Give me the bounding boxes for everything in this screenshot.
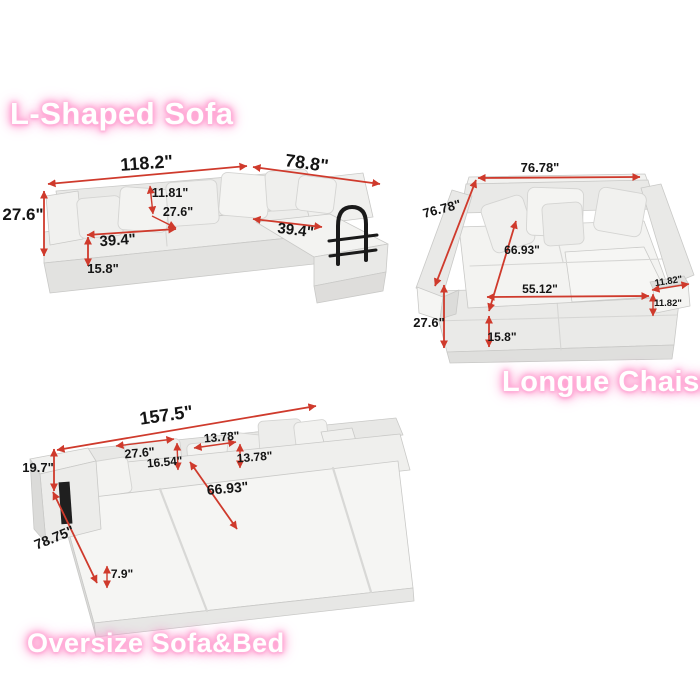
title-l-shaped-sofa: L-Shaped Sofa xyxy=(10,96,234,132)
dim-label: 55.12" xyxy=(522,282,558,296)
dim-label: 11.82" xyxy=(654,298,682,309)
l-shaped-sofa-illustration xyxy=(44,169,388,303)
dim-label: 157.5" xyxy=(138,401,194,428)
dim-label: 27.6" xyxy=(2,205,43,224)
pillow xyxy=(218,172,271,219)
product-dimension-sheet: 118.2" 78.8" 27.6" 11.81" 27.6" 39.4" 15… xyxy=(0,0,700,700)
dim-label: 15.8" xyxy=(87,261,118,276)
dim-label: 76.78" xyxy=(521,160,560,175)
dim-label: 7.9" xyxy=(111,567,133,581)
dim-arrow-inner-width xyxy=(487,296,649,297)
dim-arrow-total-width xyxy=(478,177,640,178)
dim-label: 11.81" xyxy=(152,186,189,200)
dim-label: 66.93" xyxy=(504,243,540,257)
dim-label: 39.4" xyxy=(99,231,136,250)
dim-label: 27.6" xyxy=(413,315,444,330)
pillow xyxy=(542,202,585,247)
dim-label: 15.8" xyxy=(487,330,516,344)
pillow xyxy=(593,186,648,238)
oversize-sofa-bed-illustration xyxy=(30,418,414,637)
pillow xyxy=(295,175,337,214)
title-oversize-sofa-bed: Oversize Sofa&Bed xyxy=(27,628,285,659)
title-longue-chaise: Longue Chaise xyxy=(502,366,700,399)
dim-label: 27.6" xyxy=(163,205,193,219)
dim-label: 118.2" xyxy=(120,151,174,175)
dim-label: 19.7" xyxy=(22,460,53,475)
left-armrest xyxy=(46,191,83,245)
